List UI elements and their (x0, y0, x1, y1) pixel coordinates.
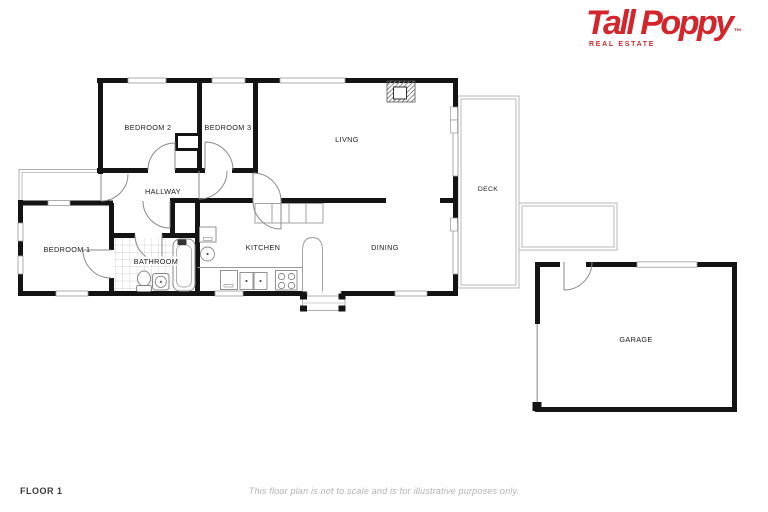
bedroom3-door (205, 142, 233, 170)
bedroom3-door-gap (205, 168, 232, 173)
bedroom1-south-window (56, 291, 88, 296)
laundry-unit (200, 227, 217, 261)
windows-and-gaps (18, 78, 458, 296)
bedroom2-door-gap (148, 168, 175, 173)
house-walls (18, 78, 458, 296)
kitchen-upper-cabinets (255, 204, 323, 224)
living-window (280, 78, 345, 83)
footer: FLOOR 1 This floor plan is not to scale … (0, 486, 768, 500)
kitchen-window (215, 291, 243, 296)
hall-closet-door (199, 171, 227, 199)
kitchen-cabinet (254, 273, 267, 290)
entry-porch-outline (19, 170, 101, 203)
linen-door (143, 201, 170, 228)
living-door (253, 173, 281, 201)
room-label-garage: GARAGE (619, 335, 652, 344)
dining-window (395, 291, 427, 296)
garage-openings (533, 262, 698, 411)
bedroom2-window (128, 78, 166, 83)
floor-plan: BEDROOM 2 BEDROOM 3 LIVNG HALLWAY BEDROO… (0, 0, 768, 512)
bathroom-sink (153, 274, 170, 291)
deck-window (453, 224, 458, 274)
bedroom1-door-gap (109, 250, 114, 278)
kitchen-cabinet (240, 273, 253, 290)
floor-label: FLOOR 1 (20, 486, 63, 496)
bedroom2-door (148, 142, 175, 170)
stove (276, 271, 298, 291)
room-label-bedroom3: BEDROOM 3 (205, 123, 252, 132)
disclaimer-text: This floor plan is not to scale and is f… (0, 486, 768, 496)
garage-window (637, 262, 697, 267)
slider-jamb (451, 120, 458, 133)
room-label-deck: DECK (478, 186, 498, 193)
kitchen-door-gap (253, 198, 281, 203)
bedroom1-west-window2 (18, 256, 23, 274)
fireplace (387, 81, 415, 102)
room-label-hallway: HALLWAY (145, 187, 181, 196)
room-label-bedroom2: BEDROOM 2 (125, 123, 172, 132)
kitchen-fridge (221, 271, 238, 290)
rear-door-gap (307, 291, 341, 296)
entry-door (101, 174, 128, 201)
slider-jamb (451, 218, 458, 231)
room-label-kitchen: KITCHEN (246, 243, 280, 252)
room-label-bathroom: BATHROOM (134, 257, 178, 266)
room-label-dining: DINING (371, 243, 399, 252)
bedroom3-window (212, 78, 245, 83)
room-label-bedroom1: BEDROOM 1 (44, 245, 91, 254)
slider-jamb (451, 107, 458, 120)
bedroom1-door (83, 250, 111, 278)
porch-steps (300, 294, 346, 312)
bathroom-door-gap (135, 233, 162, 238)
room-label-living: LIVNG (335, 135, 359, 144)
bedroom3-closet (177, 135, 200, 150)
page: Tall Poppy™ REAL ESTATE (0, 0, 768, 512)
bedroom1-west-window (18, 223, 23, 241)
bedroom1-north-window (48, 201, 70, 206)
garage-corner-post (533, 402, 542, 411)
toilet (137, 271, 152, 292)
kitchen-peninsula (303, 238, 323, 292)
